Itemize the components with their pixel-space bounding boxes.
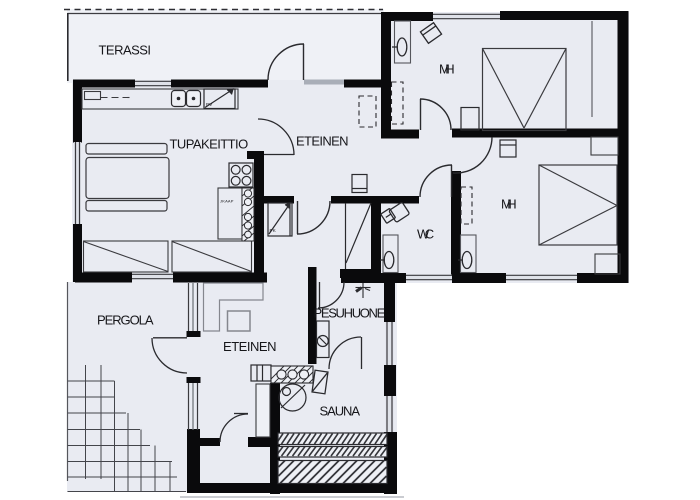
- svg-text:TERASSI: TERASSI: [99, 43, 152, 58]
- svg-text:PV: PV: [206, 102, 213, 107]
- svg-text:MH: MH: [439, 62, 455, 77]
- svg-text:MH: MH: [501, 197, 517, 212]
- svg-text:PERGOLA: PERGOLA: [97, 313, 154, 328]
- svg-text:ETEINEN: ETEINEN: [296, 134, 349, 149]
- svg-text:TUPAKEITTIO: TUPAKEITTIO: [170, 137, 249, 152]
- svg-text:SAUNA: SAUNA: [320, 404, 361, 419]
- svg-text:PK: PK: [270, 228, 277, 233]
- svg-text:PESUHUONE: PESUHUONE: [314, 306, 386, 321]
- svg-text:JKAAP: JKAAP: [220, 199, 234, 204]
- svg-text:ETEINEN: ETEINEN: [223, 339, 277, 354]
- svg-text:WC: WC: [417, 227, 435, 242]
